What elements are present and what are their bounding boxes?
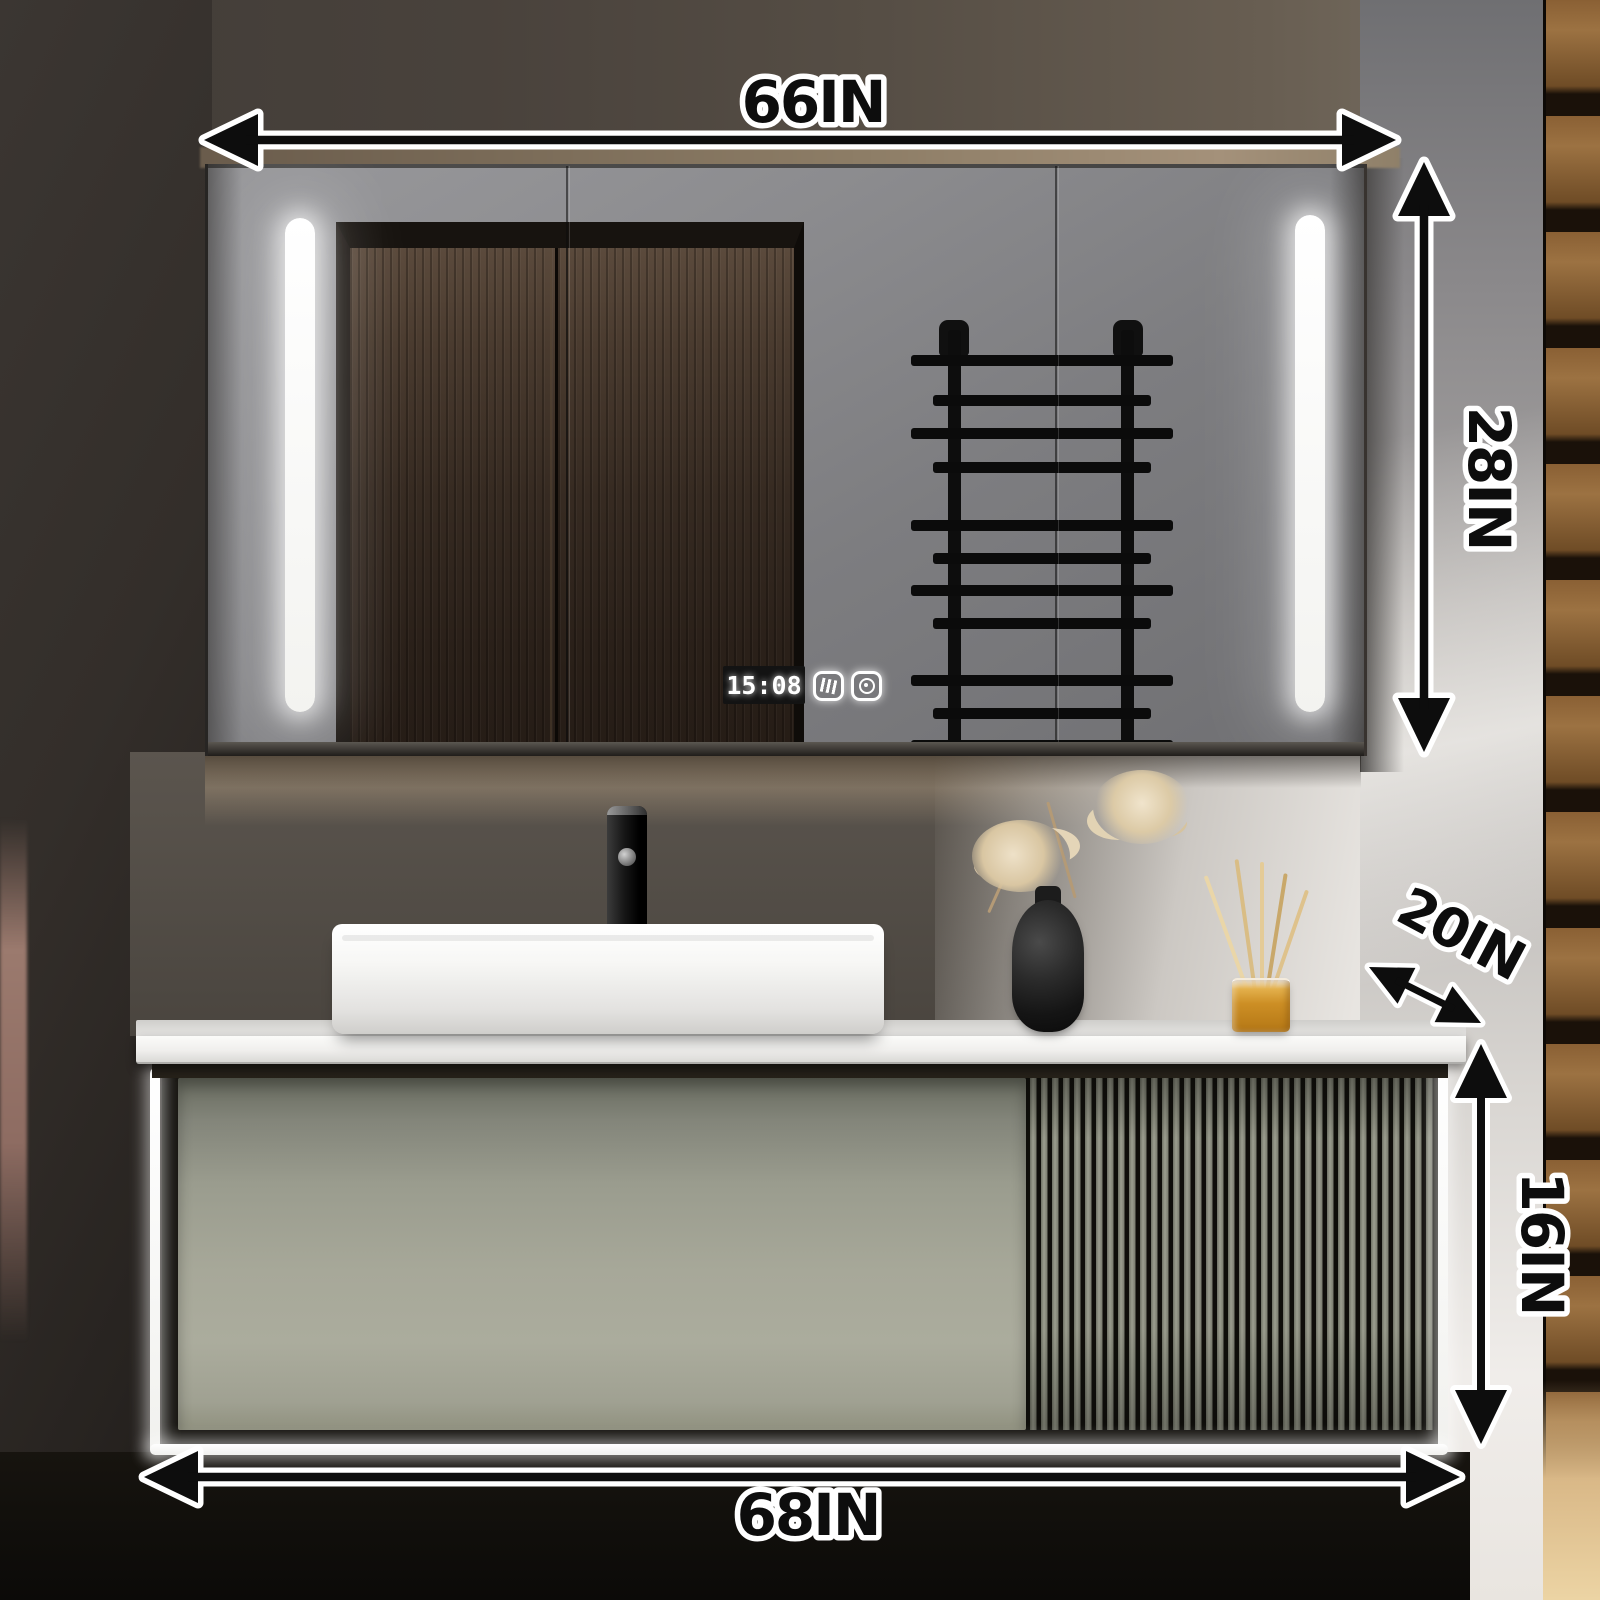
wood-slat-panel (1543, 0, 1600, 1600)
wardrobe-seam-highlight (550, 248, 552, 756)
mirror-door-seam-highlight (1058, 166, 1059, 754)
clock-time: 15:08 (726, 671, 801, 700)
cabinet-drop-shadow (205, 756, 1361, 788)
faucet (607, 806, 647, 930)
wardrobe-door-seam (555, 248, 558, 756)
led-strip-right (1295, 215, 1325, 712)
vanity-led-edge-right (1438, 1068, 1448, 1454)
rack-rung (933, 618, 1151, 629)
mirror-door-seam (566, 166, 568, 754)
rack-rung (911, 520, 1173, 531)
rack-rung (911, 675, 1173, 686)
rack-rail (1121, 330, 1134, 750)
dried-flower-cluster (1093, 770, 1191, 844)
rack-rail (948, 330, 961, 750)
mirror-door-seam (1055, 166, 1057, 754)
rack-rung (911, 355, 1173, 366)
curtain-edge (0, 818, 27, 1342)
led-strip-left (285, 218, 315, 712)
mirror-cabinet: 15:08 (205, 164, 1367, 756)
light-control-button (851, 671, 882, 701)
towel-rack-reflection (911, 320, 1173, 752)
bathroom-vanity-product-image: 15:08 (0, 0, 1600, 1600)
sink-rim-shadow (342, 935, 874, 941)
countertop-front-edge (136, 1036, 1466, 1064)
black-vase (1012, 900, 1084, 1032)
faucet-cap (607, 806, 647, 815)
mirror-door-seam-highlight (569, 166, 570, 754)
defogger-button (813, 671, 844, 701)
cabinet-bottom-edge (208, 742, 1364, 756)
wood-floor-glow (1543, 1380, 1600, 1600)
vanity-fluted-door (1026, 1074, 1434, 1430)
vanity-drawer-front (178, 1078, 1026, 1430)
vessel-sink (332, 924, 884, 1034)
cabinet-top-edge (208, 164, 1364, 168)
faucet-button (618, 848, 636, 866)
under-vanity-shadow (0, 1452, 1470, 1600)
rack-rung (933, 462, 1151, 473)
light-control-icon (859, 678, 875, 694)
under-counter-gap (152, 1062, 1448, 1078)
dried-flower-cluster (972, 820, 1070, 892)
cabinet-left-shade (208, 164, 242, 756)
vanity-led-edge-left (150, 1068, 160, 1454)
reed-diffuser-bottle (1232, 978, 1290, 1032)
rack-rung (911, 428, 1173, 439)
rack-rung (933, 708, 1151, 719)
rack-rung (933, 553, 1151, 564)
rack-rung (911, 585, 1173, 596)
rack-rung (933, 395, 1151, 406)
clock-display: 15:08 (723, 666, 805, 704)
cabinet-right-shade (1330, 164, 1364, 756)
vanity-led-edge-bottom (150, 1444, 1448, 1455)
defogger-icon (820, 678, 838, 695)
